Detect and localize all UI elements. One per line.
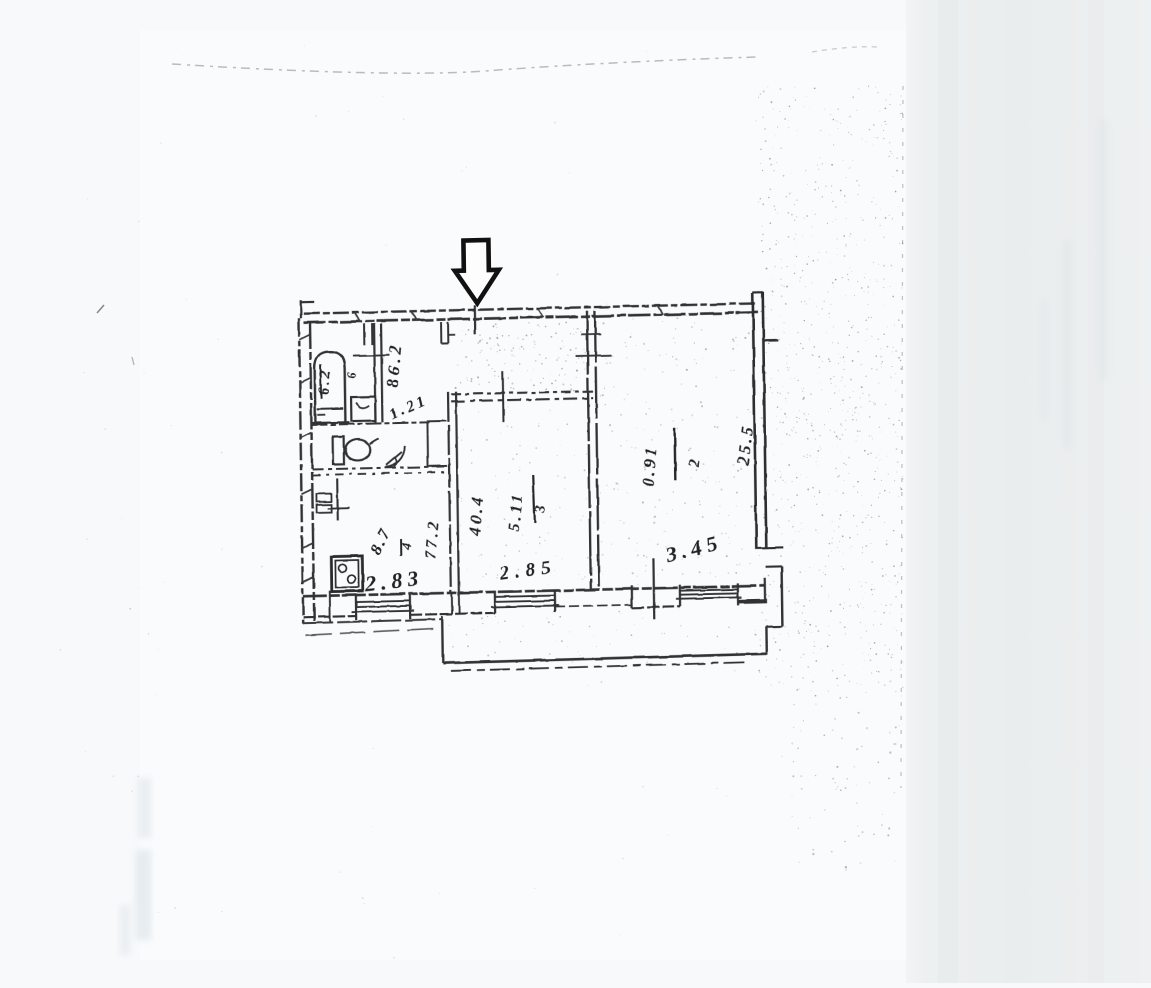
svg-text:0.91: 0.91: [639, 444, 661, 487]
svg-text:40.4: 40.4: [465, 493, 487, 537]
svg-text:77.2: 77.2: [422, 518, 443, 559]
svg-text:2: 2: [686, 458, 704, 469]
svg-text:6: 6: [344, 371, 359, 379]
svg-text:3: 3: [533, 504, 549, 514]
svg-text:6.2: 6.2: [316, 367, 334, 395]
